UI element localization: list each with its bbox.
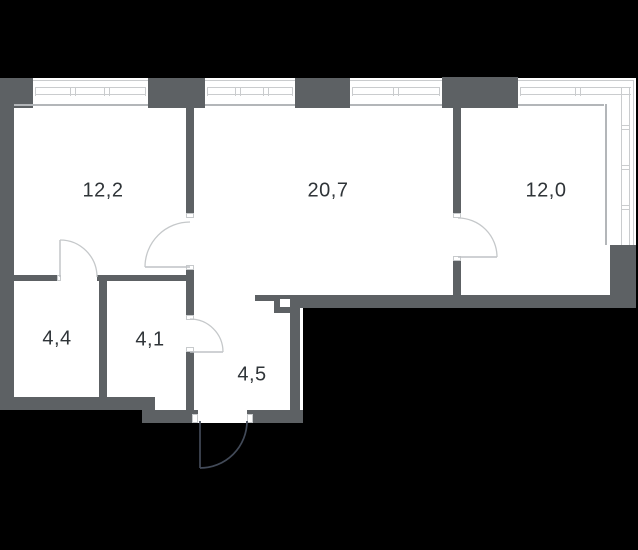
room-label-4-5: 4,5 bbox=[237, 364, 266, 387]
room-label-20-7: 20,7 bbox=[308, 180, 349, 203]
door-arc-wc bbox=[190, 319, 223, 352]
door-arc-living bbox=[145, 222, 190, 267]
door-swings-layer bbox=[0, 0, 638, 550]
floor-plan: 12,2 20,7 12,0 4,4 4,1 4,5 bbox=[0, 0, 638, 550]
room-label-12-0: 12,0 bbox=[526, 180, 567, 203]
door-arc-bedroom bbox=[458, 218, 497, 257]
entrance-door-arc bbox=[200, 421, 247, 468]
room-label-12-2: 12,2 bbox=[83, 180, 124, 203]
room-label-4-4: 4,4 bbox=[42, 328, 71, 351]
door-arc-bath bbox=[60, 240, 97, 277]
room-label-4-1: 4,1 bbox=[135, 329, 164, 352]
